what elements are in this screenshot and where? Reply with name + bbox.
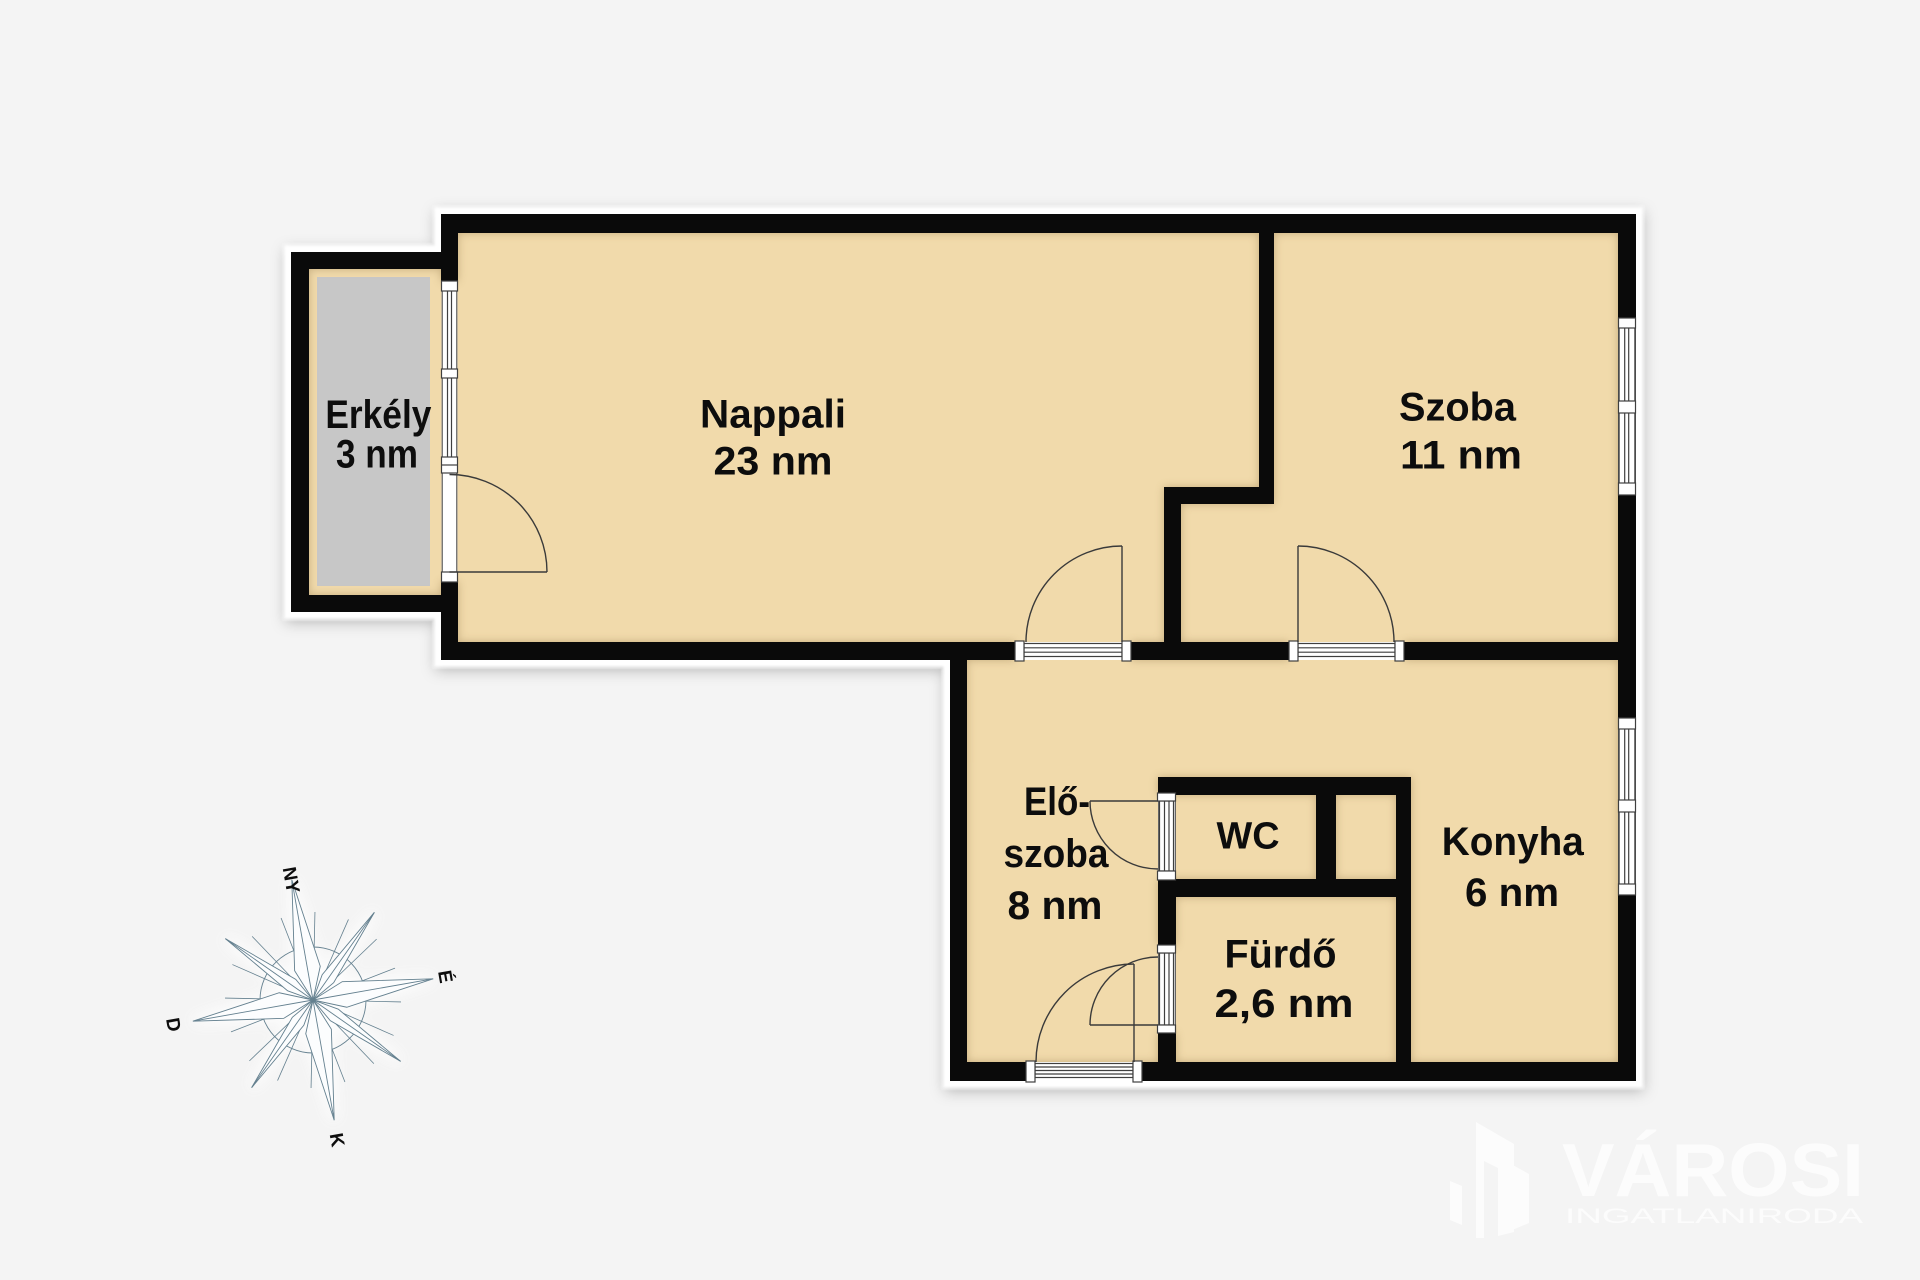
svg-text:Nappali: Nappali [700,393,846,437]
svg-text:2,6 nm: 2,6 nm [1215,982,1354,1026]
svg-text:6 nm: 6 nm [1465,871,1559,915]
svg-text:Szoba: Szoba [1399,386,1517,430]
svg-text:Elő-: Elő- [1024,780,1090,824]
svg-text:WC: WC [1217,815,1280,857]
svg-text:Erkély: Erkély [325,393,432,437]
svg-text:INGATLANIRODA: INGATLANIRODA [1565,1205,1863,1228]
svg-text:23 nm: 23 nm [714,439,833,483]
svg-text:Konyha: Konyha [1442,820,1585,864]
svg-text:VÁROSI: VÁROSI [1562,1128,1864,1212]
svg-text:3 nm: 3 nm [336,433,418,477]
svg-text:Fürdő: Fürdő [1225,933,1337,977]
svg-text:szoba: szoba [1004,832,1110,876]
svg-text:11 nm: 11 nm [1400,434,1522,478]
svg-text:8 nm: 8 nm [1008,884,1103,928]
